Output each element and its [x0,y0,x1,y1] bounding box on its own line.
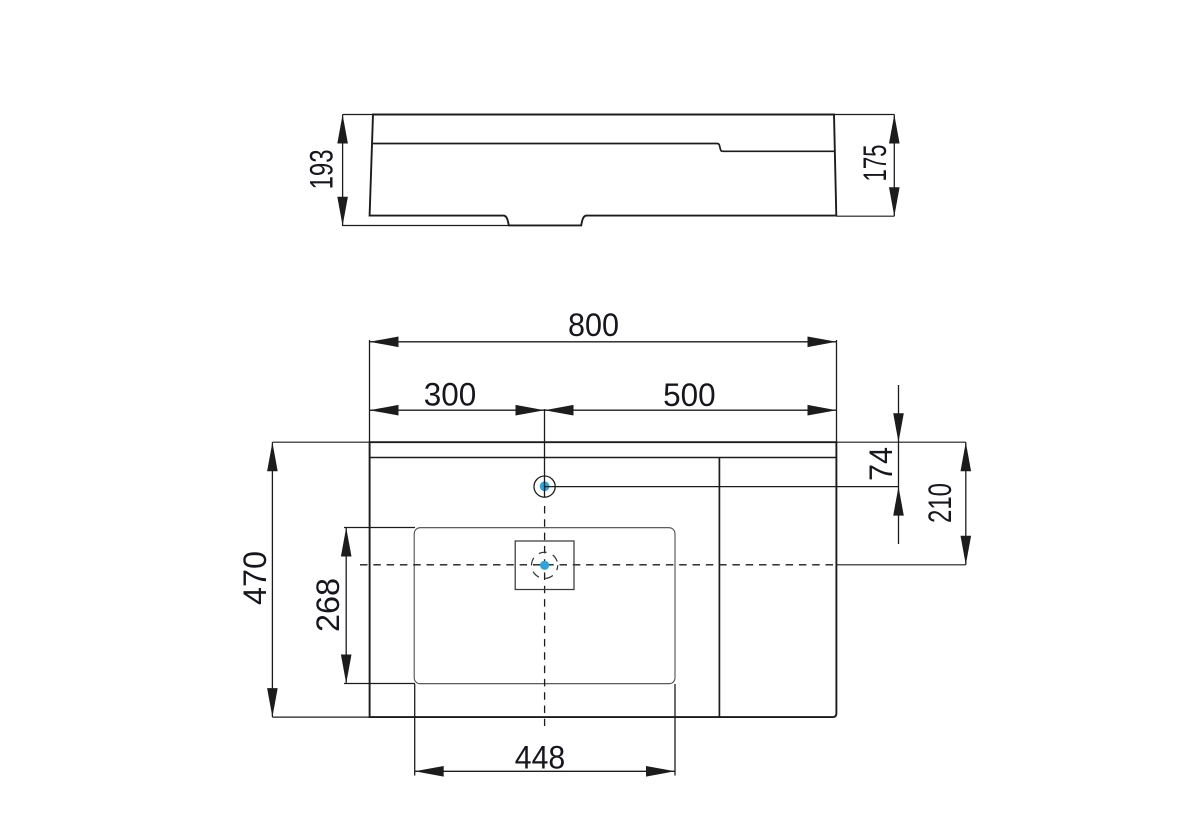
svg-text:448: 448 [515,739,566,775]
svg-text:500: 500 [663,377,716,413]
svg-text:193: 193 [304,149,340,189]
svg-text:268: 268 [310,578,346,632]
svg-text:210: 210 [922,483,958,523]
svg-text:800: 800 [568,307,619,343]
svg-text:470: 470 [237,551,273,605]
svg-text:300: 300 [424,376,477,412]
svg-text:74: 74 [863,447,899,481]
svg-text:175: 175 [857,145,893,182]
